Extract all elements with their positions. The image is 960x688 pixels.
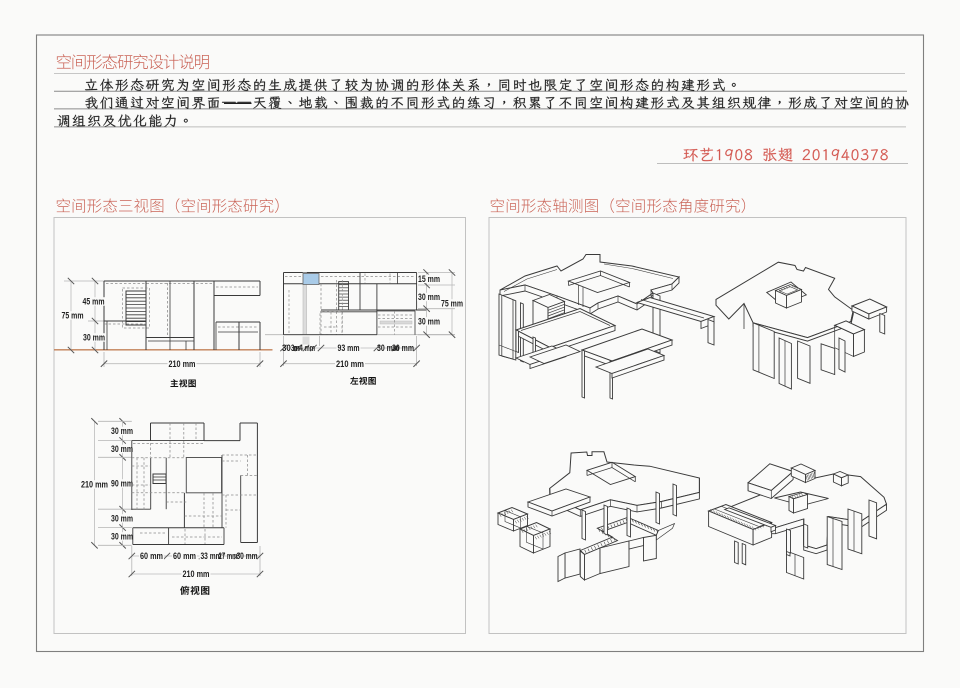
- svg-text:210 mm: 210 mm: [81, 480, 108, 490]
- svg-text:30 mm: 30 mm: [111, 426, 133, 436]
- svg-text:210 mm: 210 mm: [336, 359, 364, 369]
- svg-text:75 mm: 75 mm: [441, 299, 463, 309]
- svg-text:3m4 mm: 3m4 mm: [291, 343, 315, 353]
- svg-text:30 mm: 30 mm: [83, 333, 105, 343]
- svg-text:75 mm: 75 mm: [62, 311, 84, 321]
- svg-text:45 mm: 45 mm: [83, 297, 105, 307]
- svg-text:30 mm: 30 mm: [111, 444, 133, 454]
- svg-text:210 mm: 210 mm: [169, 359, 196, 369]
- svg-text:30 mm: 30 mm: [418, 317, 440, 327]
- svg-text:30 mm: 30 mm: [111, 532, 133, 542]
- svg-text:15 mm: 15 mm: [418, 274, 440, 284]
- svg-text:30 mm: 30 mm: [237, 551, 258, 561]
- svg-text:210 mm: 210 mm: [183, 569, 210, 579]
- svg-text:90 mm: 90 mm: [111, 479, 133, 489]
- svg-text:93 mm: 93 mm: [338, 343, 360, 353]
- svg-text:27 mm: 27 mm: [219, 551, 238, 561]
- svg-text:60 mm: 60 mm: [140, 551, 163, 561]
- svg-text:30 mm: 30 mm: [392, 343, 414, 353]
- svg-text:30 mm: 30 mm: [418, 292, 440, 302]
- svg-text:60 mm: 60 mm: [173, 551, 196, 561]
- svg-text:30 mm: 30 mm: [111, 514, 133, 524]
